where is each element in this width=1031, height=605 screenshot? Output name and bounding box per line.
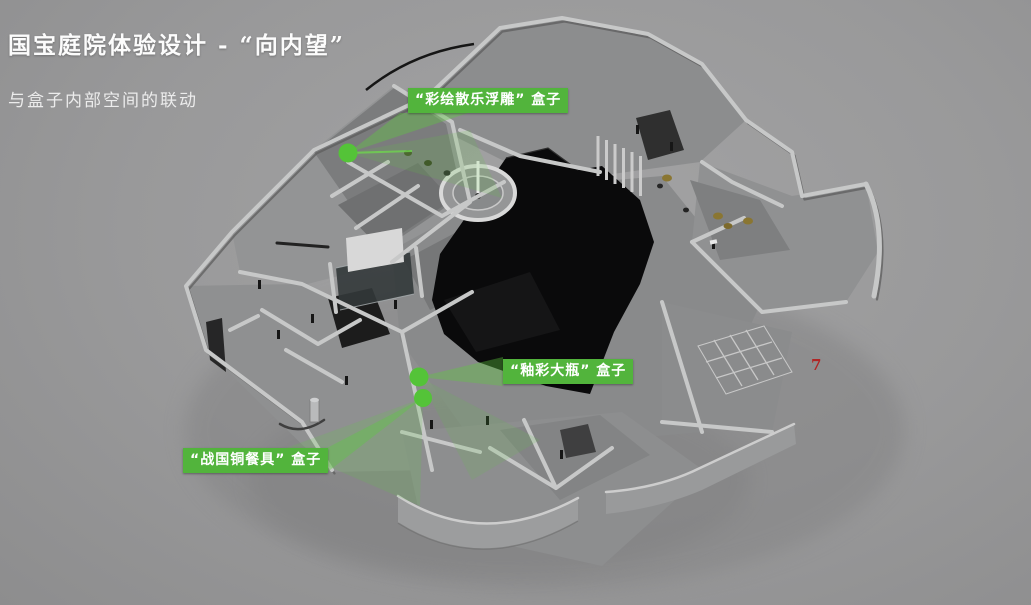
slide-canvas: 国宝庭院体验设计 - “向内望” 与盒子内部空间的联动 “彩绘散乐浮雕” 盒子 …	[0, 0, 1031, 605]
exhibit-label-caihui: “彩绘散乐浮雕” 盒子	[408, 88, 568, 113]
hotspot-dot-caihui	[339, 144, 358, 163]
page-subtitle: 与盒子内部空间的联动	[8, 86, 198, 111]
hotspot-dot-zhanguo	[414, 389, 432, 407]
page-number: 7	[811, 356, 821, 374]
exhibit-label-zhanguo: “战国铜餐具” 盒子	[183, 448, 328, 473]
exhibit-label-youcai: “釉彩大瓶” 盒子	[503, 359, 633, 384]
hotspot-dot-youcai	[410, 368, 429, 387]
page-title: 国宝庭院体验设计 - “向内望”	[8, 26, 345, 60]
